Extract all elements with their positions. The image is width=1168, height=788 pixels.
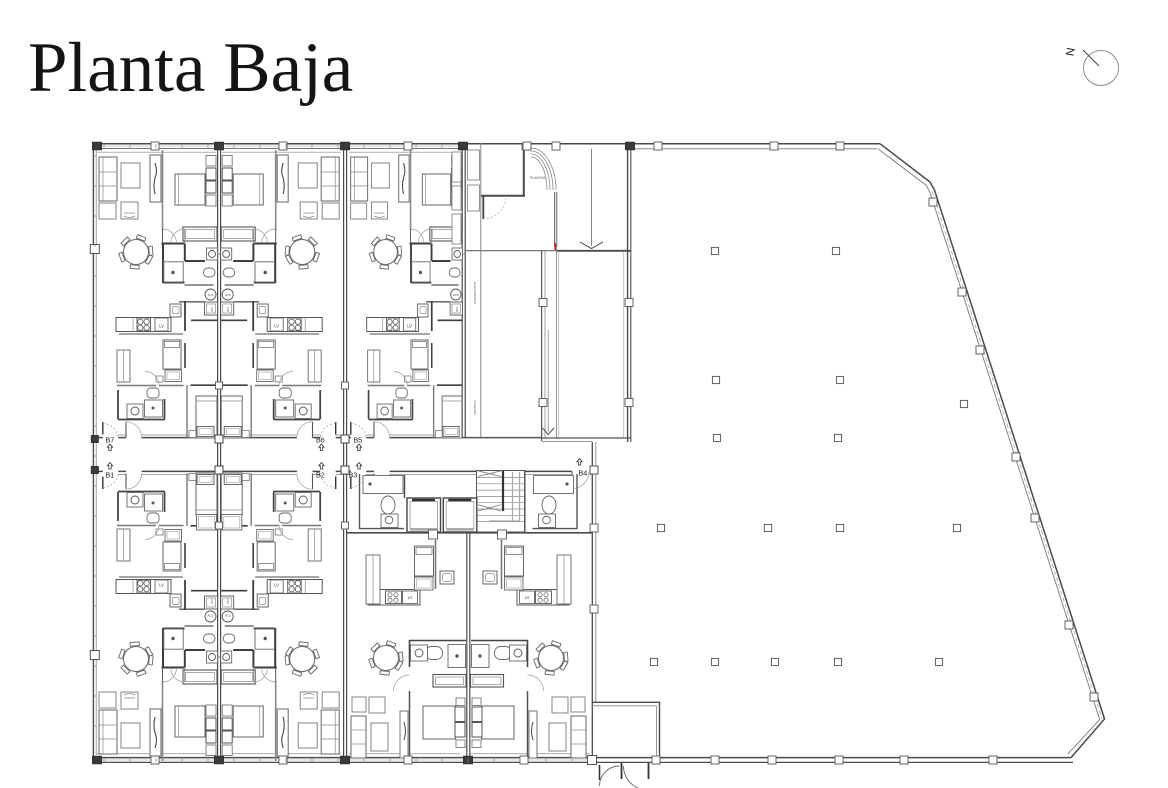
svg-text:PLANTAS: PLANTAS [530, 176, 546, 180]
svg-text:B6: B6 [316, 436, 325, 445]
svg-text:ACS: ACS [225, 293, 231, 297]
svg-text:ACS: ACS [208, 293, 214, 297]
svg-text:Planta Baja: Planta Baja [28, 29, 353, 107]
svg-text:B1: B1 [106, 471, 115, 480]
svg-text:LVD: LVD [455, 307, 459, 312]
svg-text:B5: B5 [354, 436, 363, 445]
svg-text:LV: LV [159, 583, 164, 588]
svg-text:LV: LV [274, 324, 279, 329]
svg-text:LV: LV [274, 583, 279, 588]
svg-text:B4: B4 [579, 469, 588, 478]
svg-text:LV: LV [525, 595, 530, 600]
svg-text:LV: LV [159, 324, 164, 329]
svg-text:LVD: LVD [226, 599, 230, 604]
svg-text:ACS: ACS [208, 614, 214, 618]
svg-text:LVD: LVD [210, 307, 214, 312]
svg-text:ELECTRICIDAD: ELECTRICIDAD [473, 282, 477, 305]
svg-text:B3: B3 [349, 471, 358, 480]
svg-text:TELECOM: TELECOM [473, 400, 477, 415]
svg-text:B2: B2 [316, 471, 325, 480]
svg-text:LVD: LVD [226, 307, 230, 312]
svg-text:LV: LV [407, 324, 412, 329]
svg-text:ACS: ACS [225, 614, 231, 618]
svg-text:LV: LV [408, 595, 413, 600]
svg-text:ACS: ACS [453, 293, 459, 297]
svg-text:LVD: LVD [210, 599, 214, 604]
svg-text:B7: B7 [106, 436, 115, 445]
